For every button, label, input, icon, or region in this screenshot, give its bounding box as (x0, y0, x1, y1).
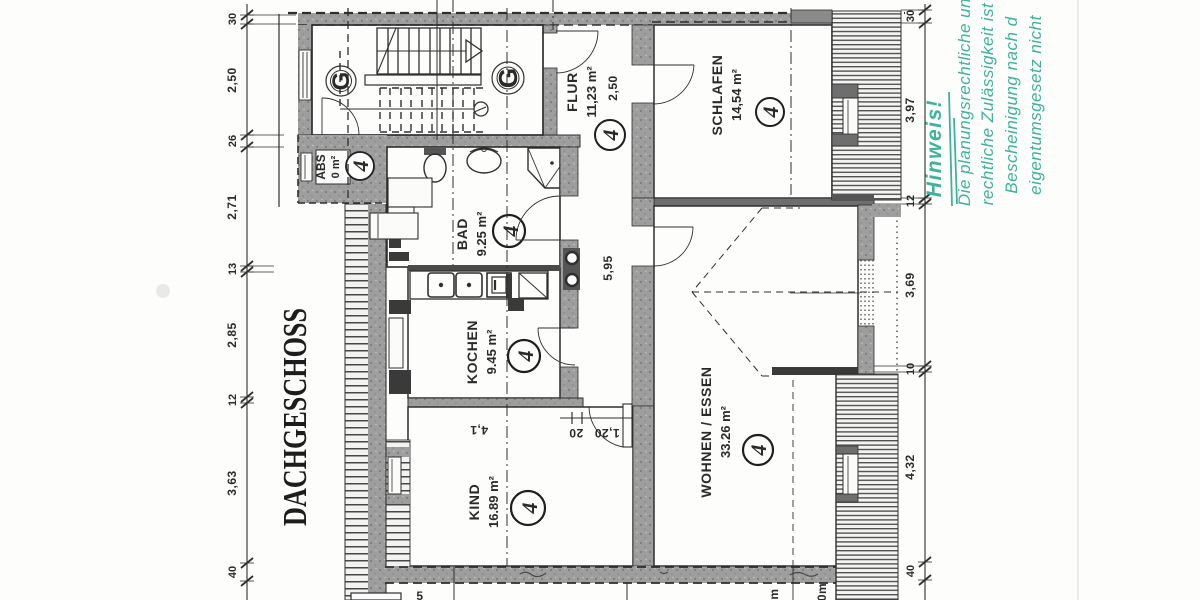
svg-text:12: 12 (227, 394, 239, 406)
svg-text:m: m (767, 588, 781, 599)
svg-text:WOHNEN / ESSEN: WOHNEN / ESSEN (698, 366, 714, 497)
svg-text:KIND: KIND (466, 484, 482, 521)
svg-text:G: G (328, 72, 355, 91)
svg-text:40: 40 (227, 566, 239, 578)
svg-text:4: 4 (513, 351, 538, 363)
svg-text:5: 5 (416, 589, 423, 600)
svg-text:30: 30 (905, 10, 917, 22)
svg-text:30: 30 (227, 13, 239, 25)
svg-text:4: 4 (746, 445, 771, 457)
svg-text:2,50: 2,50 (225, 67, 239, 92)
svg-text:33.26 m²: 33.26 m² (718, 405, 733, 458)
svg-text:FLUR: FLUR (564, 72, 580, 112)
svg-text:rechtliche Zulässigkeit ist: rechtliche Zulässigkeit ist (978, 2, 997, 205)
svg-text:2,50: 2,50 (606, 75, 620, 100)
svg-text:SCHLAFEN: SCHLAFEN (709, 54, 725, 135)
svg-text:20: 20 (569, 426, 583, 440)
svg-text:2,71: 2,71 (225, 194, 239, 219)
svg-text:4,1: 4,1 (470, 423, 488, 437)
svg-text:Hinweis!: Hinweis! (923, 99, 946, 197)
svg-text:9.45 m²: 9.45 m² (484, 329, 499, 374)
svg-text:0 m²: 0 m² (330, 155, 342, 178)
svg-text:DACHGESCHOSS: DACHGESCHOSS (277, 308, 314, 526)
svg-text:KOCHEN: KOCHEN (464, 320, 480, 384)
svg-text:2,85: 2,85 (225, 322, 239, 347)
svg-text:3,69: 3,69 (903, 272, 917, 297)
svg-text:4: 4 (758, 107, 783, 119)
svg-text:16.89 m²: 16.89 m² (486, 475, 501, 528)
svg-text:12: 12 (905, 195, 917, 207)
svg-text:Die planungsrechtliche un: Die planungsrechtliche un (955, 0, 974, 206)
svg-text:eigentumsgesetz nicht: eigentumsgesetz nicht (1026, 14, 1045, 194)
svg-text:13: 13 (227, 263, 239, 275)
svg-text:3,97: 3,97 (903, 97, 917, 122)
svg-text:4: 4 (348, 161, 373, 173)
svg-text:4,32: 4,32 (903, 454, 917, 479)
svg-text:G: G (493, 68, 523, 88)
svg-text:Bescheinigung nach d: Bescheinigung nach d (1002, 16, 1021, 193)
svg-text:BAD: BAD (454, 218, 470, 250)
svg-text:40: 40 (905, 565, 917, 577)
svg-text:26: 26 (227, 135, 239, 147)
svg-text:4: 4 (517, 503, 542, 515)
svg-text:ABS: ABS (314, 154, 328, 179)
svg-text:0m: 0m (815, 583, 829, 600)
svg-text:1,20: 1,20 (594, 426, 619, 440)
svg-text:4: 4 (498, 226, 523, 238)
svg-text:10: 10 (905, 363, 917, 375)
svg-text:11,23 m²: 11,23 m² (584, 66, 599, 118)
svg-text:4: 4 (598, 130, 623, 142)
svg-text:3,63: 3,63 (225, 470, 239, 495)
svg-text:9.25 m²: 9.25 m² (474, 211, 489, 256)
svg-text:5,95: 5,95 (601, 255, 615, 280)
svg-text:14,54 m²: 14,54 m² (729, 68, 744, 121)
